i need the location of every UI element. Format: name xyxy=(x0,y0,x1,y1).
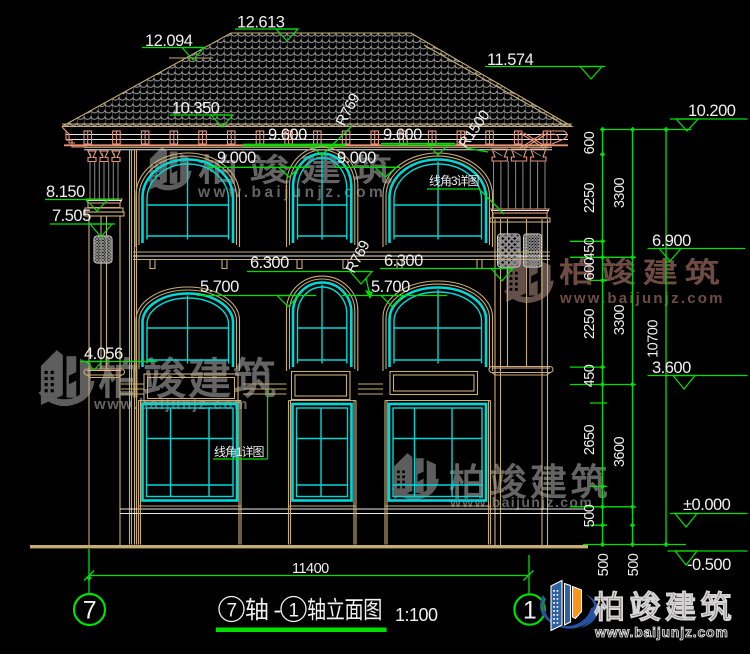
svg-text:轴立面图: 轴立面图 xyxy=(307,597,382,624)
svg-text:6.300: 6.300 xyxy=(250,254,289,272)
svg-text:600: 600 xyxy=(582,257,598,280)
svg-text:1:100: 1:100 xyxy=(395,605,438,625)
svg-text:500: 500 xyxy=(582,504,598,527)
svg-text:10700: 10700 xyxy=(646,320,662,358)
svg-text:7: 7 xyxy=(83,597,96,625)
svg-text:1: 1 xyxy=(523,597,536,625)
svg-text:500: 500 xyxy=(596,553,612,576)
svg-text:轴-: 轴- xyxy=(245,597,281,624)
svg-text:柏竣建筑: 柏竣建筑 xyxy=(594,590,736,625)
svg-text:10.200: 10.200 xyxy=(688,102,736,120)
svg-text:7.505: 7.505 xyxy=(52,207,91,225)
svg-text:9.000: 9.000 xyxy=(217,149,256,167)
svg-text:11400: 11400 xyxy=(292,561,329,577)
svg-text:600: 600 xyxy=(582,131,598,154)
svg-text:-0.500: -0.500 xyxy=(687,556,731,574)
svg-text:450: 450 xyxy=(582,237,598,260)
svg-text:8.150: 8.150 xyxy=(46,183,85,201)
svg-text:9.600: 9.600 xyxy=(268,126,307,144)
svg-text:9.600: 9.600 xyxy=(383,126,422,144)
svg-text:6.300: 6.300 xyxy=(384,252,423,270)
svg-text:3300: 3300 xyxy=(612,177,628,208)
svg-text:4.056: 4.056 xyxy=(84,345,123,363)
svg-text:线角1详图: 线角1详图 xyxy=(214,444,264,459)
svg-text:5.700: 5.700 xyxy=(371,278,410,296)
svg-text:3600: 3600 xyxy=(612,436,628,467)
svg-text:3300: 3300 xyxy=(612,304,628,335)
svg-text:9.000: 9.000 xyxy=(337,149,376,167)
svg-text:www.baijunjz.com: www.baijunjz.com xyxy=(559,290,725,307)
svg-text:6.900: 6.900 xyxy=(652,232,691,250)
svg-text:3.600: 3.600 xyxy=(652,359,691,377)
svg-text:7: 7 xyxy=(226,601,236,622)
svg-text:www.baijunjz.com: www.baijunjz.com xyxy=(594,624,729,640)
svg-text:2250: 2250 xyxy=(582,182,598,213)
svg-text:2650: 2650 xyxy=(582,424,598,455)
svg-text:2250: 2250 xyxy=(582,308,598,339)
svg-text:1: 1 xyxy=(288,601,298,622)
svg-text:450: 450 xyxy=(582,364,598,387)
svg-text:线角3详图: 线角3详图 xyxy=(429,173,479,188)
svg-text:5.700: 5.700 xyxy=(200,278,239,296)
svg-text:500: 500 xyxy=(626,553,642,576)
svg-text:±0.000: ±0.000 xyxy=(683,496,731,514)
